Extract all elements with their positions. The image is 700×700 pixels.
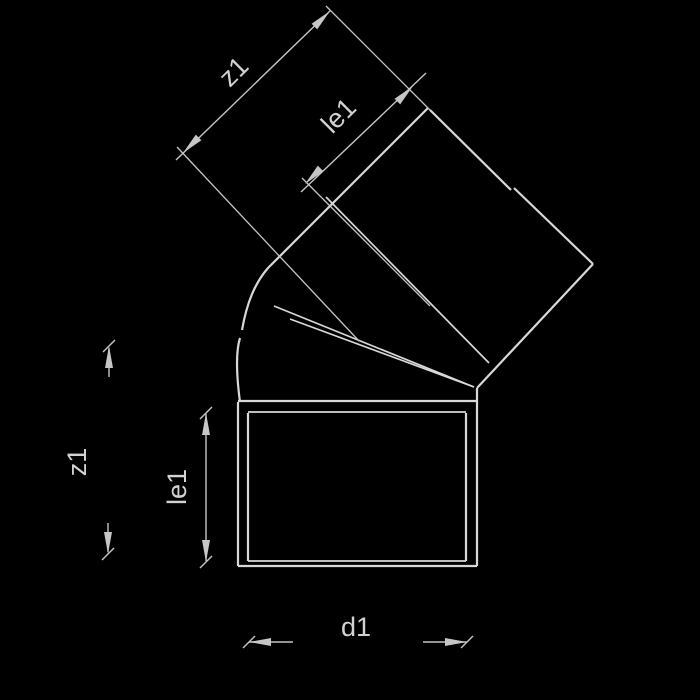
extension-lines <box>177 6 430 341</box>
le1-diagonal-label: le1 <box>315 92 362 139</box>
mouth-face-lower-segment <box>514 188 593 264</box>
socket-depth-extension-line <box>302 178 430 306</box>
elbow-fitting-diagram: z1 le1 z1 le1 d1 <box>0 0 700 700</box>
inner-bend-wedge-lower <box>290 319 474 387</box>
diagonal-socket-depth-line <box>326 197 489 363</box>
mouth-face-upper-segment <box>430 110 511 190</box>
dimension-z1-diagonal: z1 <box>176 11 330 160</box>
center-plane-extension-line <box>177 147 359 341</box>
d1-label: d1 <box>341 612 371 642</box>
le1-vertical-label: le1 <box>162 469 192 505</box>
le1-diagonal-arrow-upper <box>395 86 413 104</box>
bend-outer-arc-upper <box>242 108 428 330</box>
z1-vertical-label: z1 <box>62 448 92 477</box>
dimension-le1-vertical: le1 <box>162 407 212 568</box>
dimension-le1-diagonal: le1 <box>301 73 426 192</box>
fitting-outline <box>237 108 593 566</box>
z1-diagonal-dimension-line <box>176 11 330 160</box>
dimension-d1: d1 <box>243 612 473 648</box>
technical-drawing-canvas: z1 le1 z1 le1 d1 <box>0 0 700 700</box>
z1-diagonal-label: z1 <box>213 51 254 92</box>
bend-outer-arc-lower <box>237 338 240 402</box>
dimension-z1-vertical: z1 <box>62 340 115 560</box>
le1-diagonal-arrow-lower <box>305 166 323 184</box>
diagonal-inner-edge <box>477 264 593 388</box>
